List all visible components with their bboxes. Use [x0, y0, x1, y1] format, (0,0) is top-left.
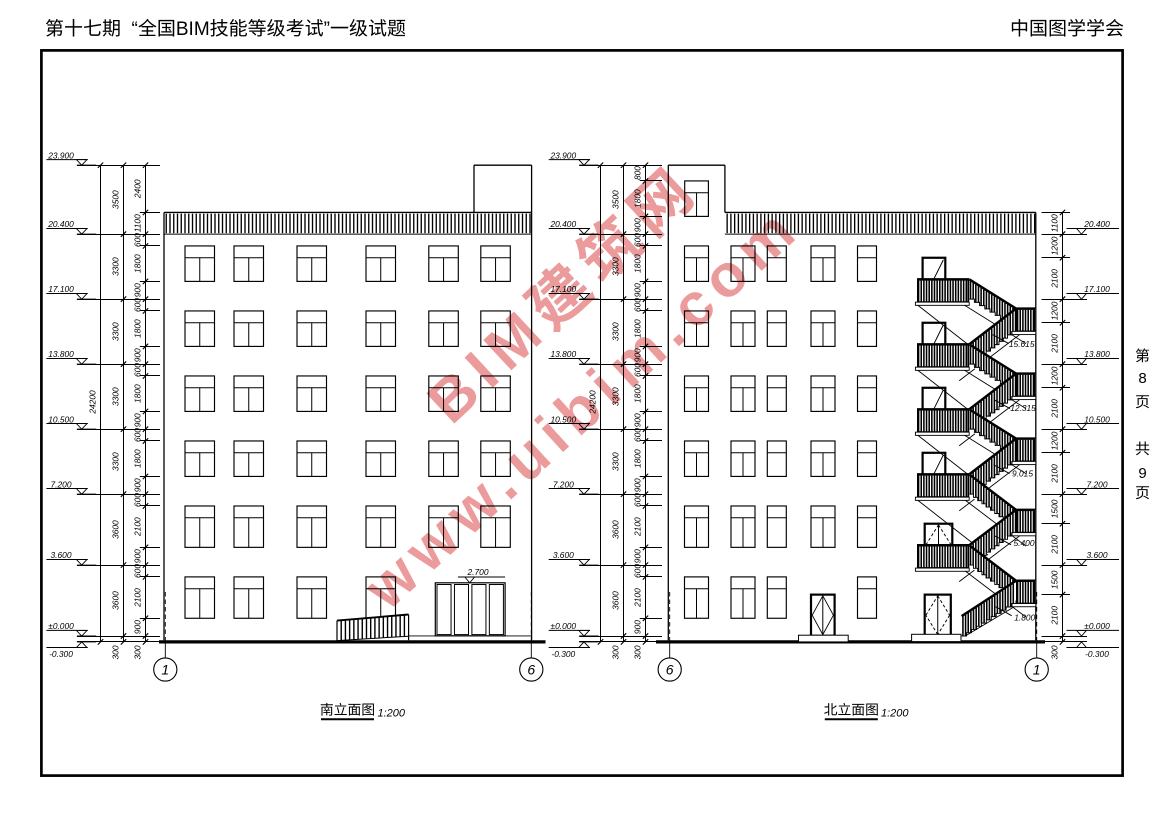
svg-text:20.400: 20.400 — [1083, 219, 1110, 229]
svg-text:600: 600 — [133, 363, 143, 377]
svg-text:800: 800 — [633, 166, 643, 180]
svg-text:900: 900 — [633, 620, 643, 634]
svg-text:1100: 1100 — [133, 214, 143, 232]
svg-text:9.015: 9.015 — [1012, 469, 1033, 479]
svg-text:1800: 1800 — [133, 449, 143, 468]
svg-text:±0.000: ±0.000 — [48, 621, 74, 631]
svg-text:900: 900 — [133, 283, 143, 297]
svg-text:9: 9 — [1138, 465, 1146, 482]
svg-text:”: ” — [324, 19, 330, 40]
svg-text:900: 900 — [633, 348, 643, 362]
svg-text:3.600: 3.600 — [553, 550, 574, 560]
svg-text:1200: 1200 — [1050, 366, 1060, 385]
svg-text:1500: 1500 — [1050, 570, 1060, 589]
svg-text:8: 8 — [1138, 370, 1146, 387]
svg-text:2100: 2100 — [133, 588, 143, 608]
svg-text:900: 900 — [633, 478, 643, 492]
svg-text:-0.300: -0.300 — [49, 649, 73, 659]
svg-text:17.100: 17.100 — [48, 284, 74, 294]
svg-text:3500: 3500 — [111, 190, 121, 209]
svg-text:900: 900 — [633, 283, 643, 297]
svg-text:3300: 3300 — [111, 257, 121, 276]
svg-text:600: 600 — [133, 493, 143, 507]
svg-text:2100: 2100 — [1050, 399, 1060, 419]
svg-text:1:200: 1:200 — [881, 708, 909, 720]
svg-text:300: 300 — [133, 645, 143, 659]
svg-text:1800: 1800 — [133, 254, 143, 273]
svg-text:12.315: 12.315 — [1010, 403, 1036, 413]
svg-text:1100: 1100 — [1050, 214, 1060, 232]
svg-text:1200: 1200 — [1050, 431, 1060, 450]
svg-text:10.500: 10.500 — [550, 414, 576, 424]
svg-text:600: 600 — [633, 564, 643, 578]
svg-text:900: 900 — [133, 348, 143, 362]
svg-text:-0.300: -0.300 — [1085, 649, 1109, 659]
svg-text:900: 900 — [633, 413, 643, 427]
svg-text:13.800: 13.800 — [48, 349, 74, 359]
svg-text:900: 900 — [633, 549, 643, 563]
svg-text:900: 900 — [133, 413, 143, 427]
svg-text:23.900: 23.900 — [47, 150, 74, 160]
svg-text:1200: 1200 — [1050, 236, 1060, 255]
svg-text:3600: 3600 — [111, 591, 121, 610]
svg-text:900: 900 — [633, 218, 643, 232]
svg-text:2100: 2100 — [1050, 464, 1060, 484]
svg-text:1.800: 1.800 — [1014, 612, 1035, 622]
svg-text:2400: 2400 — [133, 179, 143, 199]
svg-text:600: 600 — [133, 233, 143, 247]
svg-text:6: 6 — [666, 662, 674, 678]
svg-text:3.600: 3.600 — [1087, 550, 1108, 560]
svg-text:3300: 3300 — [611, 387, 621, 406]
svg-text:3600: 3600 — [611, 591, 621, 610]
svg-text:24200: 24200 — [588, 390, 598, 415]
svg-text:900: 900 — [133, 620, 143, 634]
svg-text:2100: 2100 — [133, 517, 143, 537]
svg-text:7.200: 7.200 — [51, 479, 72, 489]
svg-text:2100: 2100 — [633, 517, 643, 537]
svg-text:1: 1 — [161, 662, 169, 678]
svg-text:10.500: 10.500 — [48, 414, 74, 424]
svg-text:600: 600 — [633, 428, 643, 442]
svg-text:600: 600 — [633, 233, 643, 247]
svg-text:24200: 24200 — [88, 390, 98, 415]
svg-text:“: “ — [132, 19, 138, 40]
svg-text:300: 300 — [111, 645, 121, 659]
svg-text:1: 1 — [1033, 662, 1041, 678]
svg-text:2100: 2100 — [1050, 269, 1060, 289]
svg-text:3300: 3300 — [611, 322, 621, 341]
svg-text:2.700: 2.700 — [467, 567, 489, 577]
svg-text:3300: 3300 — [611, 257, 621, 276]
svg-text:3600: 3600 — [111, 520, 121, 539]
svg-text:7.200: 7.200 — [553, 479, 574, 489]
svg-text:±0.000: ±0.000 — [551, 621, 577, 631]
svg-text:1800: 1800 — [633, 384, 643, 403]
svg-text:15.615: 15.615 — [1009, 339, 1035, 349]
svg-text:20.400: 20.400 — [47, 219, 74, 229]
svg-text:2100: 2100 — [633, 588, 643, 608]
svg-text:300: 300 — [611, 645, 621, 659]
svg-text:900: 900 — [133, 478, 143, 492]
svg-text:600: 600 — [133, 564, 143, 578]
svg-text:3500: 3500 — [611, 190, 621, 209]
svg-text:2100: 2100 — [1050, 334, 1060, 354]
svg-text:300: 300 — [1050, 645, 1060, 659]
svg-text:13.800: 13.800 — [1084, 349, 1110, 359]
svg-text:1800: 1800 — [133, 384, 143, 403]
svg-text:13.800: 13.800 — [550, 349, 576, 359]
svg-text:BIM: BIM — [176, 19, 210, 40]
svg-text:6: 6 — [527, 662, 535, 678]
svg-text:600: 600 — [633, 363, 643, 377]
svg-text:3300: 3300 — [111, 452, 121, 471]
svg-text:1800: 1800 — [133, 319, 143, 338]
svg-text:1500: 1500 — [1050, 499, 1060, 518]
svg-text:23.900: 23.900 — [549, 150, 576, 160]
svg-text:-0.300: -0.300 — [551, 649, 575, 659]
svg-text:1800: 1800 — [633, 319, 643, 338]
svg-text:2100: 2100 — [1050, 606, 1060, 626]
svg-text:3.600: 3.600 — [51, 550, 72, 560]
svg-text:3300: 3300 — [111, 387, 121, 406]
svg-text:600: 600 — [133, 298, 143, 312]
svg-text:3300: 3300 — [611, 452, 621, 471]
svg-text:1800: 1800 — [633, 189, 643, 208]
svg-text:10.500: 10.500 — [1084, 414, 1110, 424]
svg-text:7.200: 7.200 — [1087, 479, 1108, 489]
svg-text:3300: 3300 — [111, 322, 121, 341]
svg-text:3600: 3600 — [611, 520, 621, 539]
svg-text:17.100: 17.100 — [550, 284, 576, 294]
svg-text:17.100: 17.100 — [1084, 284, 1110, 294]
svg-text:1:200: 1:200 — [378, 708, 406, 720]
svg-text:300: 300 — [633, 645, 643, 659]
svg-text:600: 600 — [633, 298, 643, 312]
svg-text:1200: 1200 — [1050, 301, 1060, 320]
svg-text:900: 900 — [133, 549, 143, 563]
svg-text:600: 600 — [633, 493, 643, 507]
svg-text:600: 600 — [133, 428, 143, 442]
svg-text:1800: 1800 — [633, 254, 643, 273]
svg-text:5.400: 5.400 — [1014, 538, 1035, 548]
svg-text:±0.000: ±0.000 — [1084, 621, 1110, 631]
svg-text:2100: 2100 — [1050, 535, 1060, 555]
svg-text:20.400: 20.400 — [549, 219, 576, 229]
svg-text:1800: 1800 — [633, 449, 643, 468]
